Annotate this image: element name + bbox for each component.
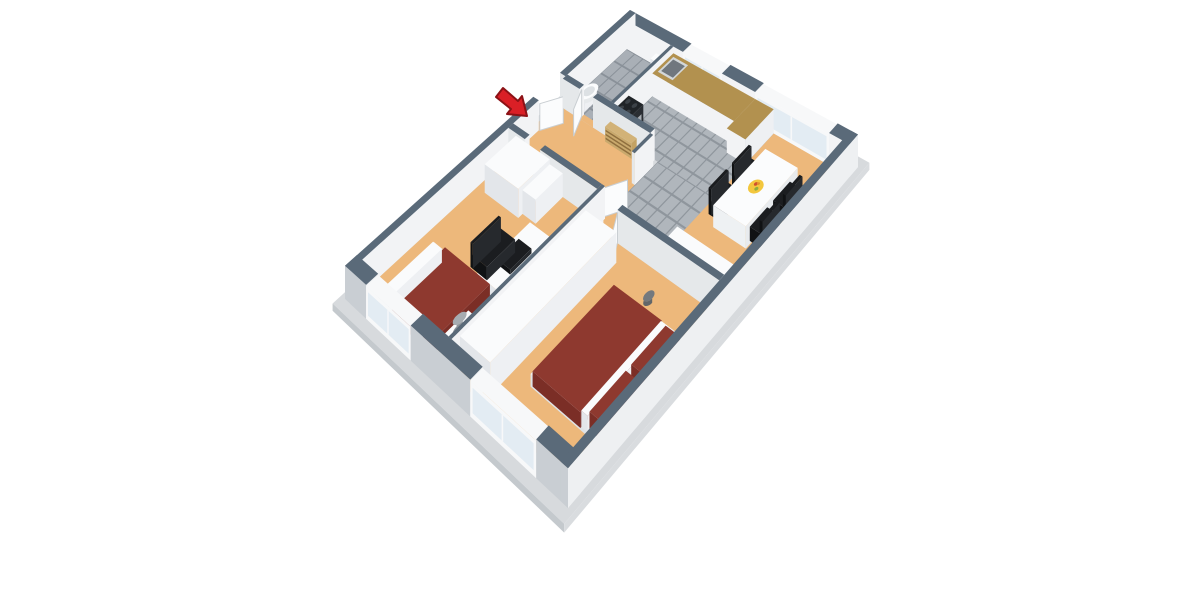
hall-living-wall-side [632, 151, 635, 185]
floor-plan-3d-render [0, 0, 1200, 600]
entrance-marker [496, 88, 527, 116]
dining-chair-back-side [709, 188, 712, 216]
exterior-wall-side [561, 462, 568, 508]
office-chair-back-side [471, 242, 473, 268]
entrance-arrow-icon [496, 88, 527, 116]
floor-plan-stage [0, 0, 1200, 600]
